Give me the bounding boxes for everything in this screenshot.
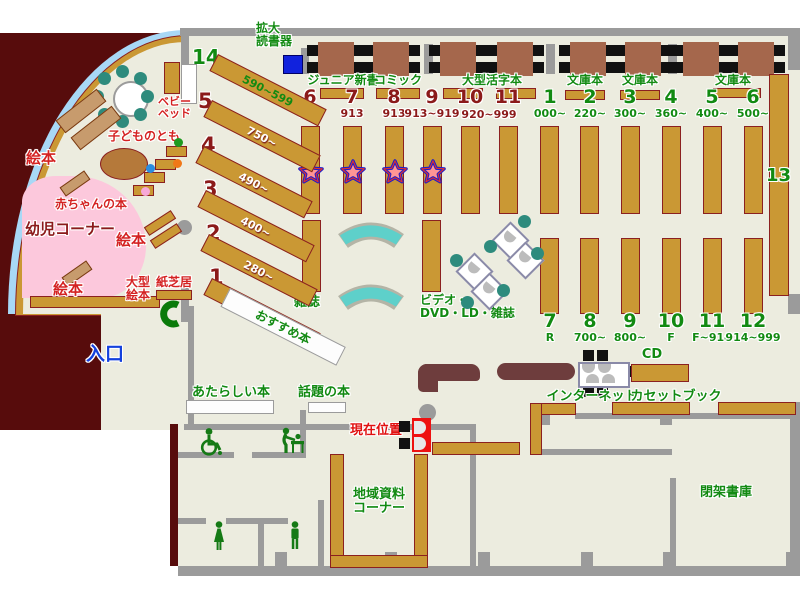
chair-teal <box>141 90 154 103</box>
chair-teal <box>116 65 129 78</box>
bunko-5-label: 5400~ <box>696 88 728 119</box>
chair <box>399 421 410 432</box>
curved-bench <box>337 280 405 310</box>
bookshelf <box>580 126 599 214</box>
step <box>166 146 187 157</box>
bookshelf <box>662 238 681 314</box>
shelf-8-green-label: 8700~ <box>574 312 606 343</box>
curved-bench <box>337 218 405 248</box>
reading-table <box>738 42 774 76</box>
stool <box>518 215 531 228</box>
cd-shelf <box>631 364 689 382</box>
cassette-shelf <box>612 402 690 415</box>
monitor <box>586 374 599 383</box>
restroom-left-wall <box>170 424 178 566</box>
current-position-label: 現在位置 <box>350 424 402 438</box>
rug <box>100 148 148 180</box>
kodomonotomo-label: 子どものとも <box>108 130 180 143</box>
chair <box>661 62 672 73</box>
wall-stack-room-h <box>538 449 672 455</box>
wall-top-left <box>181 28 189 66</box>
ehon-label-1: 絵本 <box>26 150 56 167</box>
chair <box>614 62 625 73</box>
baby-change-icon <box>277 426 307 456</box>
bookshelf <box>744 126 763 214</box>
counter-left-stub <box>418 364 438 392</box>
chair <box>727 62 738 73</box>
step <box>144 172 165 183</box>
counter-right <box>497 363 575 380</box>
baby-bed-label: ベビーベッド <box>158 96 191 120</box>
shelf-12-green-label: 12914~999 <box>725 312 780 343</box>
restroom-floor-strip <box>178 424 186 566</box>
ehon-label-3: 絵本 <box>53 281 83 298</box>
shelf-9-label: 9913~919 <box>404 88 459 119</box>
kamishibai-shelf <box>156 290 192 300</box>
pillar-5 <box>663 552 675 566</box>
bookshelf <box>499 126 518 214</box>
bookshelf <box>621 126 640 214</box>
long-shelf <box>718 402 796 415</box>
reading-table <box>497 42 533 76</box>
chair <box>672 45 683 56</box>
stool <box>461 296 474 309</box>
kamishibai-label: 紙芝居 <box>156 276 192 289</box>
wall-stub-2 <box>546 44 555 74</box>
chair <box>486 62 497 73</box>
junior-shinsho-label: ジュニア新書 <box>307 74 378 87</box>
shelf-13-label: 13 <box>766 166 791 186</box>
reading-table <box>570 42 606 76</box>
local-corner-shelf-right <box>414 454 428 568</box>
chair <box>429 45 440 56</box>
shelf-8-label: 8913 <box>383 88 406 119</box>
reading-table <box>373 42 409 76</box>
magnifier-label: 拡大読書器 <box>256 22 292 48</box>
chair <box>727 45 738 56</box>
bookshelf <box>461 126 480 214</box>
bookshelf <box>580 238 599 314</box>
bookshelf <box>703 126 722 214</box>
infant-corner-label: 幼児コーナー <box>25 221 115 238</box>
chair <box>362 62 373 73</box>
stool <box>484 240 497 253</box>
star-icon <box>419 158 447 186</box>
chair <box>409 45 420 56</box>
bunko-6-label: 6500~ <box>737 88 769 119</box>
new-books-shelf <box>186 400 274 414</box>
stool <box>497 284 510 297</box>
cushion-pink <box>141 187 150 196</box>
stool <box>531 247 544 260</box>
chair <box>362 45 373 56</box>
chair <box>307 62 318 73</box>
chair <box>559 45 570 56</box>
topic-books-label: 話題の本 <box>298 386 350 400</box>
reading-table <box>318 42 354 76</box>
man-icon <box>287 521 303 551</box>
local-corner-shelf-left <box>330 454 344 568</box>
chair <box>486 45 497 56</box>
shelf-10-11-range: 920~999 <box>461 108 516 120</box>
star-icon <box>339 158 367 186</box>
chair <box>533 45 544 56</box>
chair <box>559 62 570 73</box>
pillar-4 <box>581 552 593 566</box>
pillar-1 <box>275 552 287 566</box>
chair-teal <box>134 72 147 85</box>
ehon-label-2: 絵本 <box>116 232 146 249</box>
shelf-10-green-label: 10F <box>658 312 684 343</box>
chair-teal <box>98 72 111 85</box>
monitor <box>602 374 615 383</box>
shelf-beside-kiosk <box>432 442 520 455</box>
stool <box>450 254 463 267</box>
large-ehon-label: 大型絵本 <box>126 276 150 302</box>
chair <box>533 62 544 73</box>
pillar-3 <box>478 552 490 566</box>
chair <box>307 45 318 56</box>
av-shelf <box>422 220 441 292</box>
new-books-label: あたらしい本 <box>192 386 270 400</box>
local-corner-label: 地域資料コーナー <box>344 488 414 517</box>
entrance-label: 入口 <box>86 344 124 365</box>
cushion-green <box>174 138 183 147</box>
chair <box>583 350 594 361</box>
wall-restroom-v3 <box>318 500 324 566</box>
l-shelf-v <box>530 403 542 455</box>
shelf-7-green-label: 7R <box>543 312 556 343</box>
cushion-blue <box>146 164 155 173</box>
chair <box>774 62 785 73</box>
bookshelf <box>744 238 763 314</box>
chair <box>409 62 420 73</box>
wall-restroom-v2 <box>258 518 264 566</box>
wall-bottom <box>178 566 800 576</box>
reading-table <box>625 42 661 76</box>
bunko-3-label: 3300~ <box>614 88 646 119</box>
chair <box>661 45 672 56</box>
shelf-9-green-label: 9800~ <box>614 312 646 343</box>
shelf-11-label: 11 <box>495 88 521 107</box>
chair <box>399 438 410 449</box>
wheelchair-icon <box>195 427 229 457</box>
bunko-1-label: 1000~ <box>534 88 566 119</box>
star-icon <box>381 158 409 186</box>
bookshelf <box>540 126 559 214</box>
reading-table <box>683 42 719 76</box>
magnifier-device <box>283 55 303 74</box>
wall-right-mid <box>788 294 800 314</box>
bookshelf <box>703 238 722 314</box>
closed-stacks-label: 閉架書庫 <box>700 486 752 500</box>
local-corner-shelf-bottom <box>330 555 428 568</box>
topic-books-shelf <box>308 402 346 413</box>
wall-right-low <box>790 402 800 568</box>
chair <box>614 45 625 56</box>
shelf-7-label: 7913 <box>341 88 364 119</box>
baby-bed-shelf <box>164 62 180 94</box>
cushion-orange <box>173 159 182 168</box>
bookshelf <box>621 238 640 314</box>
bunko-4-label: 4360~ <box>655 88 687 119</box>
pillar-6 <box>786 552 798 566</box>
wall-restroom-h2a <box>178 518 206 524</box>
chair-teal <box>134 108 147 121</box>
bookshelf <box>662 126 681 214</box>
woman-icon <box>210 521 228 551</box>
shelf-10-label: 10 <box>457 88 483 107</box>
chair <box>774 45 785 56</box>
bunko-2-label: 2220~ <box>574 88 606 119</box>
chair <box>672 62 683 73</box>
phone-icon <box>160 300 184 328</box>
cd-label: CD <box>642 348 662 362</box>
chair <box>597 350 608 361</box>
chair <box>429 62 440 73</box>
library-floor-map: 拡大読書器 ジュニア新書 コミック 大型活字本 文庫本 文庫本 文庫本 6913… <box>0 0 800 600</box>
wall-right-top <box>788 36 800 70</box>
reading-table <box>440 42 476 76</box>
baby-books-label: 赤ちゃんの本 <box>55 198 127 211</box>
wall-restroom-h2b <box>226 518 288 524</box>
